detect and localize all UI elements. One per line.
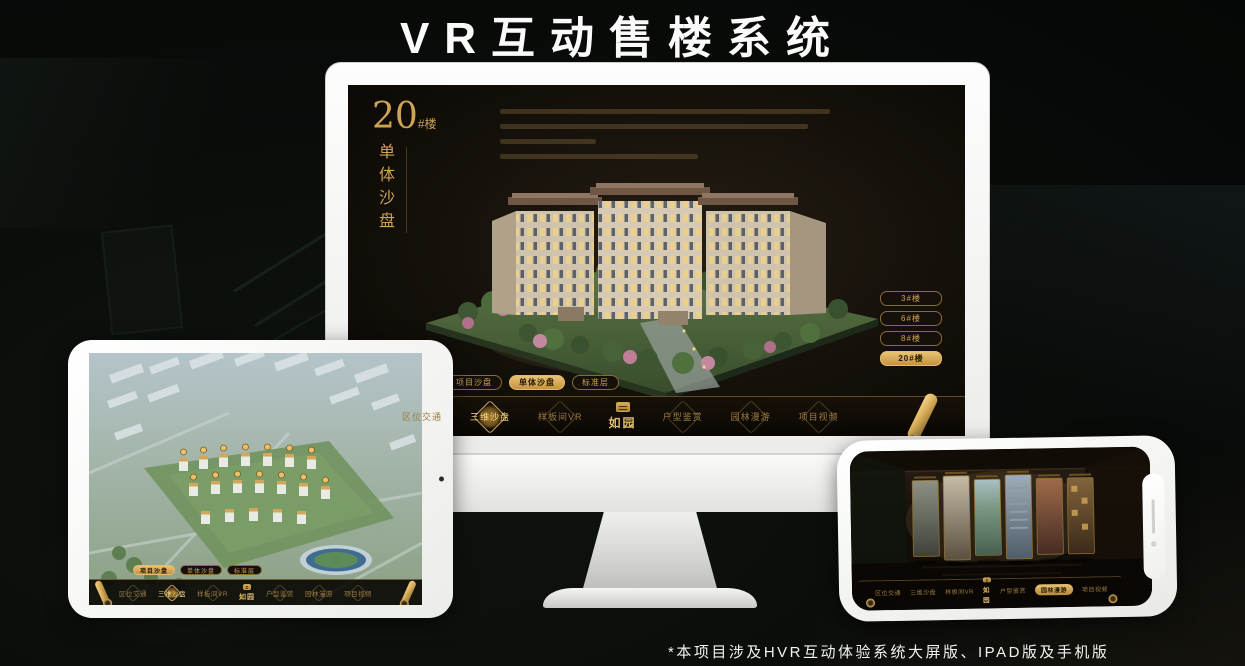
tablet-device: 项目沙盘 单体沙盘 标准层 区位交通 三维沙盘 样板间VR 如园: [68, 340, 453, 618]
scroll-icon[interactable]: [94, 579, 111, 605]
nav-3d-sandbox[interactable]: 三维沙盘: [910, 587, 936, 596]
nav-garden-roam[interactable]: 园林漫游: [305, 588, 333, 598]
nav-project-video[interactable]: 项目视频: [1082, 584, 1108, 593]
brand-logo: 如园: [239, 584, 255, 602]
scroll-icon[interactable]: [1112, 578, 1121, 600]
brand-logo: 如园: [983, 577, 991, 604]
nav-3d-sandbox[interactable]: 三维沙盘: [468, 397, 512, 436]
tablet-sandbox-subtabs: 项目沙盘 单体沙盘 标准层: [133, 565, 262, 575]
header-divider: [406, 147, 407, 233]
nav-showroom-vr[interactable]: 样板间VR: [197, 588, 228, 598]
background-road-line: [233, 226, 336, 292]
camera-icon: [439, 477, 444, 482]
seal-icon: [616, 402, 630, 412]
background-plaque: [101, 225, 183, 336]
monitor-base: [543, 588, 757, 608]
floor-button-group: 3#楼 6#楼 8#楼 20#楼: [880, 291, 942, 366]
tablet-navbar: 区位交通 三维沙盘 样板间VR 如园 户型鉴赏 园林漫游: [89, 579, 422, 605]
tab-single-building-sandbox[interactable]: 单体沙盘: [509, 375, 565, 390]
page-title: VR互动售楼系统: [0, 2, 1245, 66]
nav-showroom-vr[interactable]: 样板间VR: [945, 587, 974, 597]
nav-floorplan-gallery[interactable]: 户型鉴赏: [661, 397, 705, 436]
building-subtitle: 单体沙盘: [372, 143, 396, 243]
stadium: [300, 545, 372, 575]
nav-project-video[interactable]: 项目视频: [344, 588, 372, 598]
tablet-screen: 项目沙盘 单体沙盘 标准层 区位交通 三维沙盘 样板间VR 如园: [89, 353, 422, 605]
phone-device: 区位交通 三维沙盘 样板间VR 如园 户型鉴赏 园林漫游 项目视频: [836, 435, 1177, 622]
sandbox-subtabs: 项目沙盘 单体沙盘 标准层: [446, 375, 619, 390]
description-line: [500, 109, 830, 114]
camera-icon: [1151, 541, 1156, 546]
scroll-icon[interactable]: [861, 582, 871, 604]
scroll-icon[interactable]: [400, 579, 417, 605]
phone-notch: [1142, 473, 1166, 579]
phone-screen: 区位交通 三维沙盘 样板间VR 如园 户型鉴赏 园林漫游 项目视频: [850, 446, 1153, 610]
tab-single-building-sandbox[interactable]: 单体沙盘: [180, 565, 222, 575]
nav-floorplan-gallery[interactable]: 户型鉴赏: [266, 588, 294, 598]
nav-showroom-vr[interactable]: 样板间VR: [536, 397, 585, 436]
brand-logo: 如园: [609, 402, 637, 431]
nav-project-video[interactable]: 项目视频: [797, 397, 841, 436]
nav-garden-roam[interactable]: 园林漫游: [729, 397, 773, 436]
speaker-icon: [1152, 499, 1156, 533]
scroll-icon[interactable]: [906, 391, 940, 436]
floor-button-20[interactable]: 20#楼: [880, 351, 942, 366]
nav-3d-sandbox[interactable]: 三维沙盘: [158, 588, 186, 598]
building-mass: [492, 183, 826, 325]
building-model-illustration: [408, 127, 898, 399]
floor-button-3[interactable]: 3#楼: [880, 291, 942, 306]
phone-navbar: 区位交通 三维沙盘 样板间VR 如园 户型鉴赏 园林漫游 项目视频: [858, 576, 1122, 605]
seal-icon: [983, 577, 991, 582]
tab-project-sandbox[interactable]: 项目沙盘: [446, 375, 502, 390]
monitor-stand: [582, 512, 718, 592]
tab-standard-floor[interactable]: 标准层: [572, 375, 619, 390]
nav-location-traffic[interactable]: 区位交通: [119, 588, 147, 598]
tab-project-sandbox[interactable]: 项目沙盘: [133, 565, 175, 575]
poster-stage: VR互动售楼系统 20#楼 单体沙盘: [0, 0, 1245, 666]
nav-garden-roam[interactable]: 园林漫游: [1035, 584, 1073, 596]
floor-button-6[interactable]: 6#楼: [880, 311, 942, 326]
seal-icon: [243, 584, 251, 590]
nav-floorplan-gallery[interactable]: 户型鉴赏: [1000, 586, 1026, 595]
footnote: *本项目涉及HVR互动体验系统大屏版、IPAD版及手机版: [668, 641, 1109, 662]
floor-button-8[interactable]: 8#楼: [880, 331, 942, 346]
nav-location-traffic[interactable]: 区位交通: [875, 588, 901, 597]
background-map-texture: [0, 58, 260, 228]
tab-standard-floor[interactable]: 标准层: [227, 565, 262, 575]
